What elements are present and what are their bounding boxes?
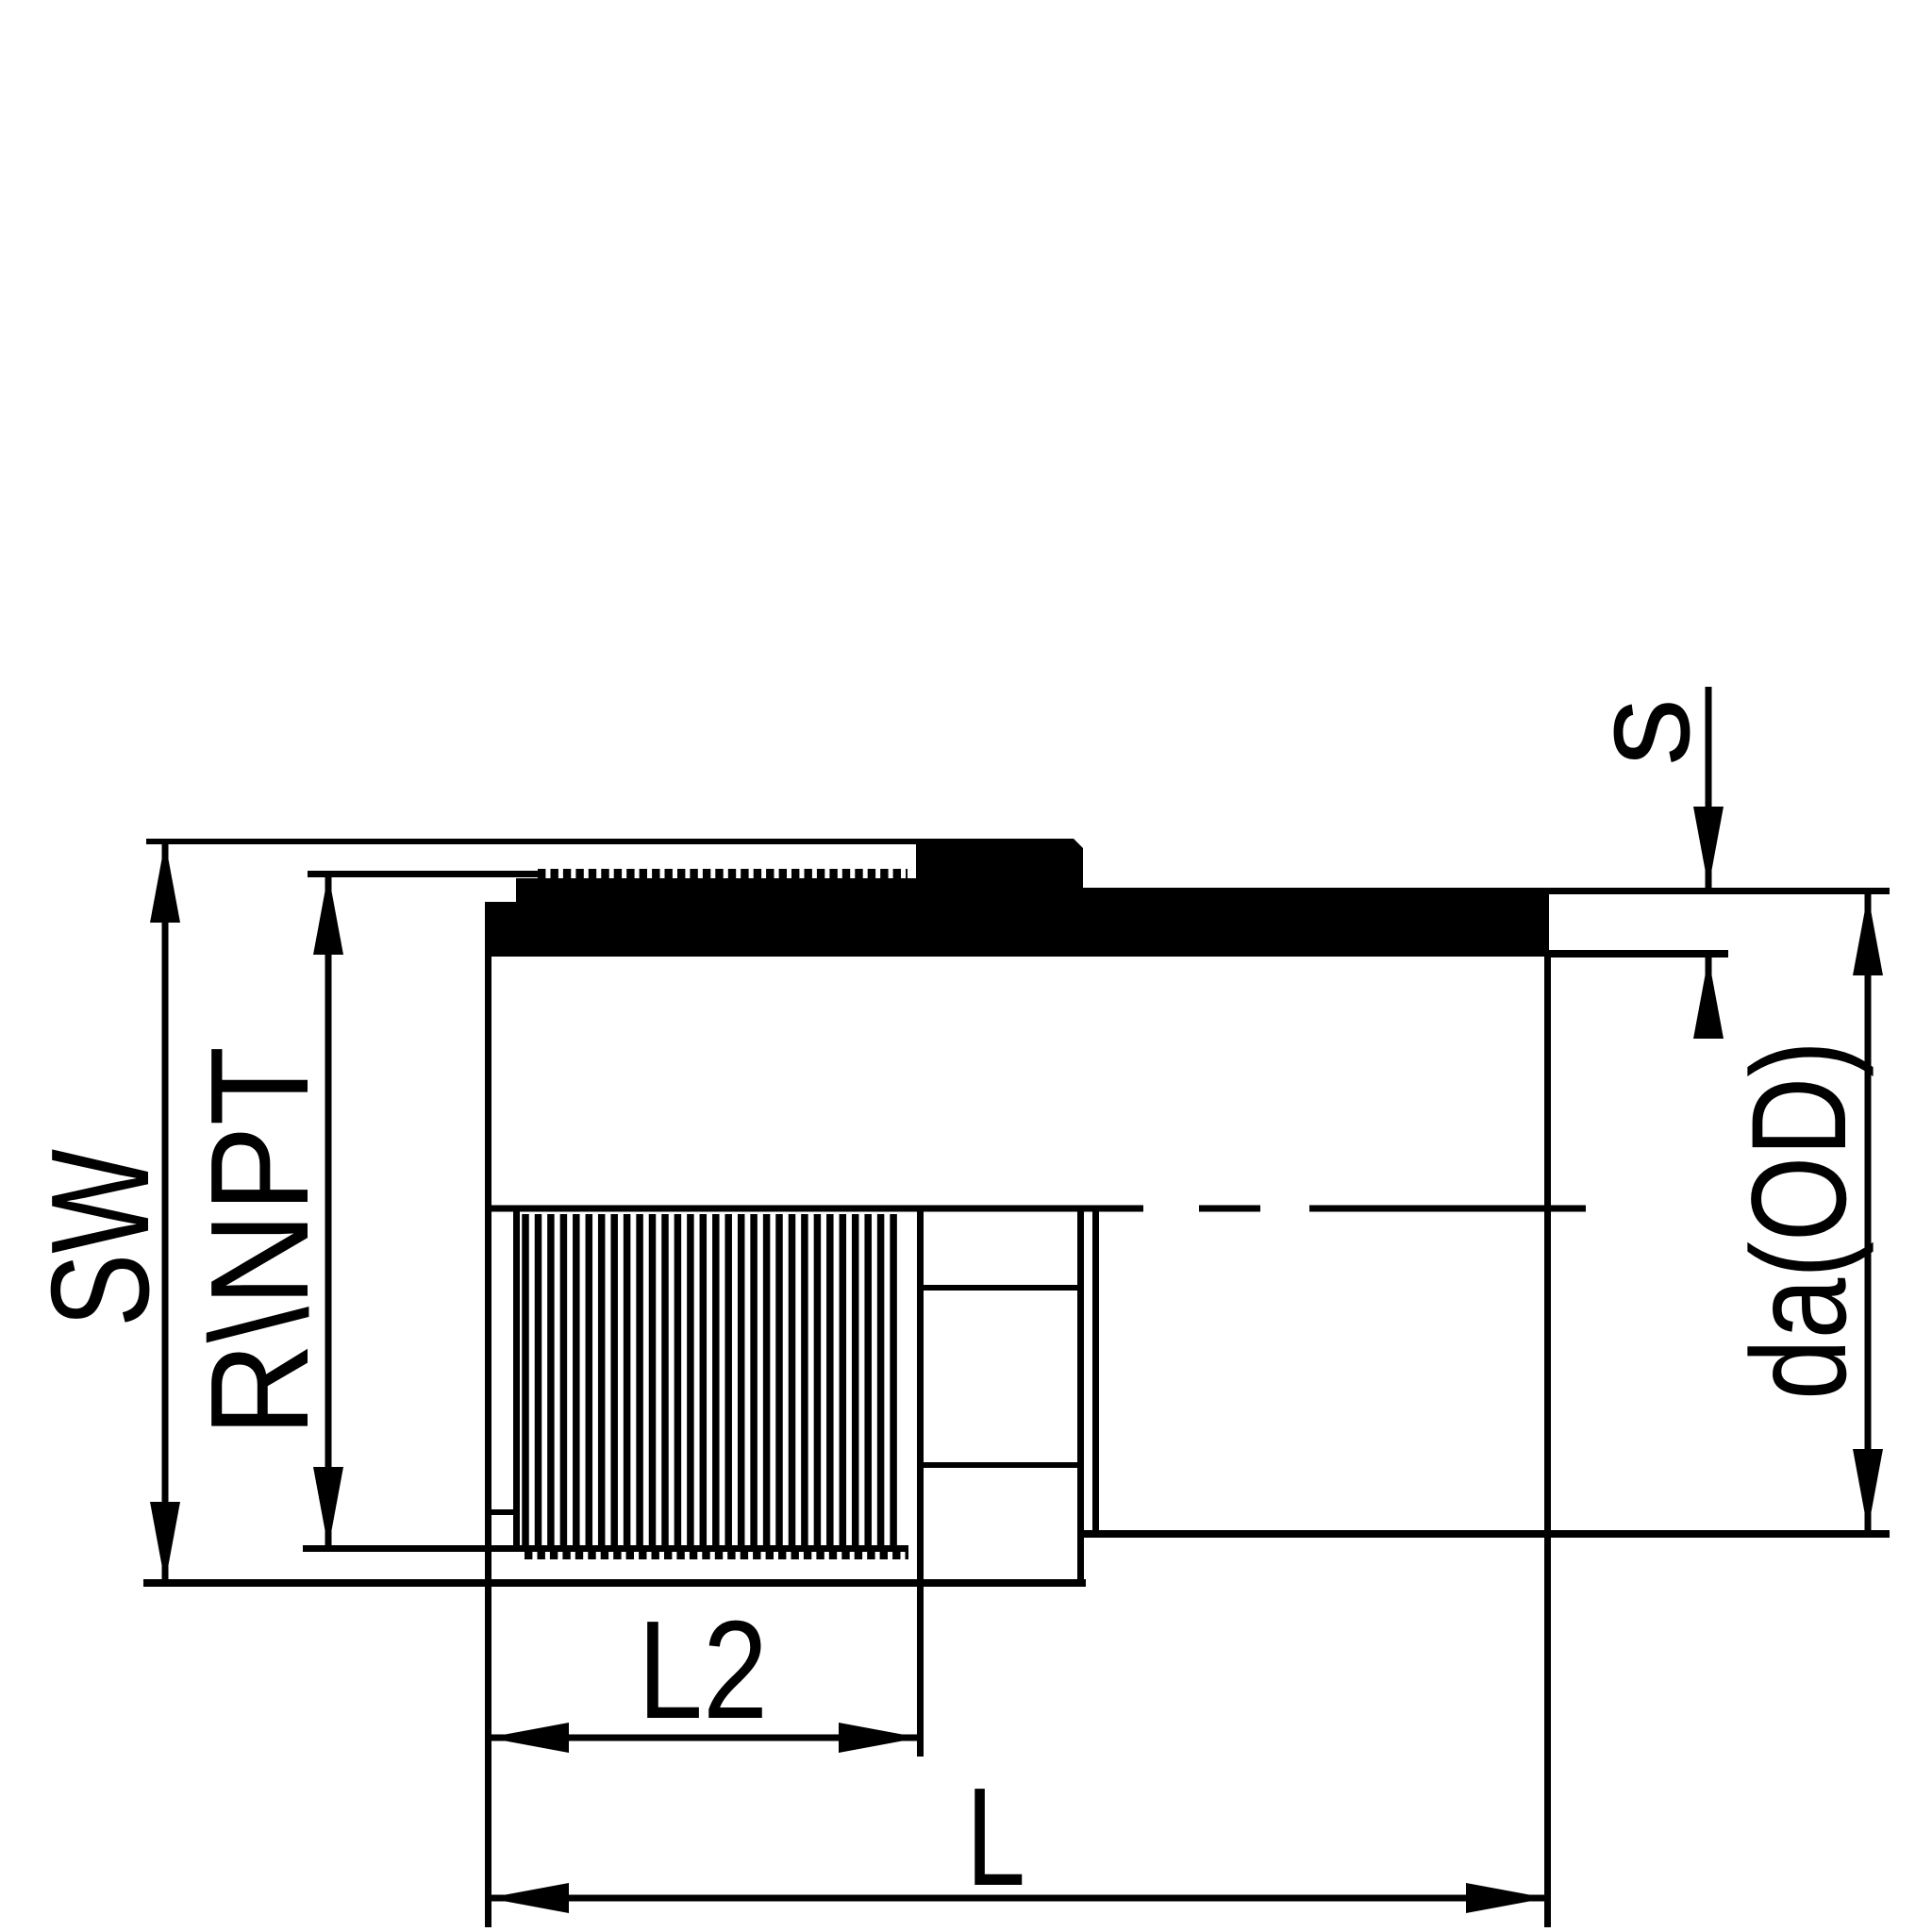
svg-text:R\NPT: R\NPT <box>182 1046 338 1437</box>
svg-text:L2: L2 <box>638 1592 768 1748</box>
svg-text:L: L <box>966 1759 1025 1915</box>
svg-text:s: s <box>1563 698 1719 766</box>
svg-text:da(OD): da(OD) <box>1724 1041 1874 1400</box>
svg-text:SW: SW <box>23 1149 178 1327</box>
